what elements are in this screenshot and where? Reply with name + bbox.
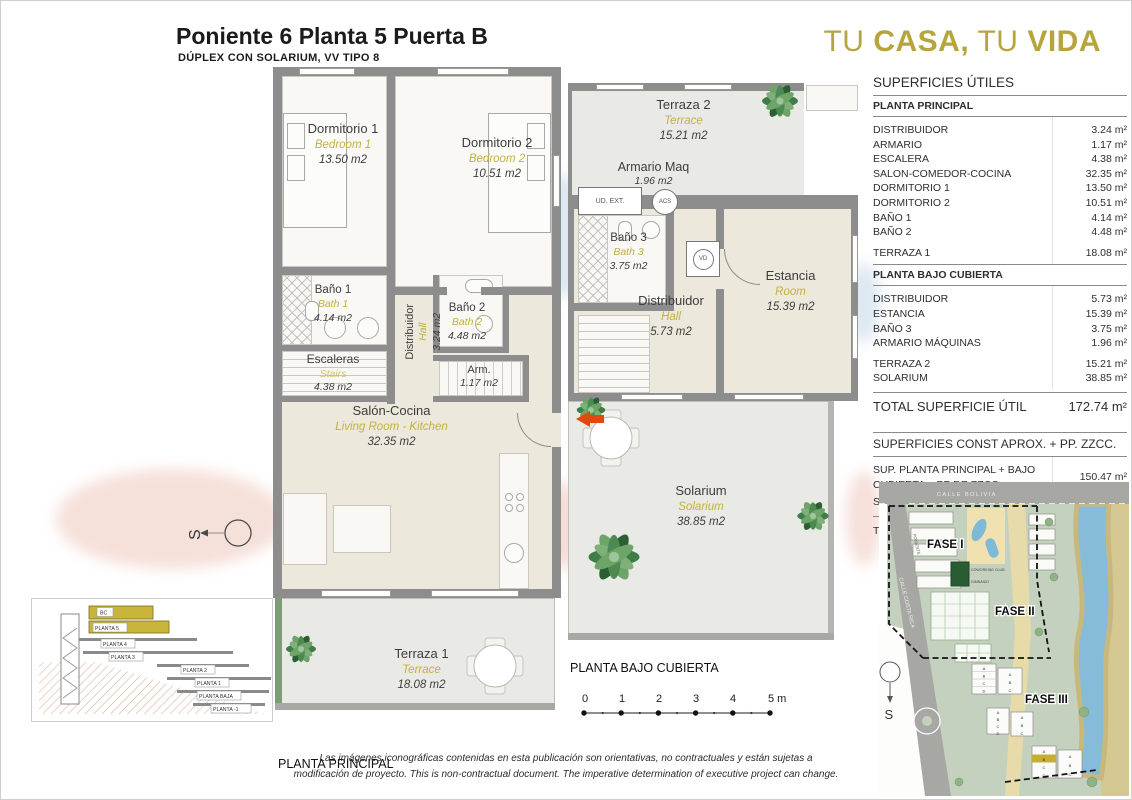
room-label-armario: Arm. 1.17 m2 [429,363,529,391]
room-name: Armario Maq [591,159,716,175]
table-title-superficies-const: SUPERFICIES CONST APROX. + PP. ZZCC. [873,432,1127,457]
row-value: 5.73 m² [1057,292,1127,307]
plant-icon [580,523,648,591]
row-value: 3.24 m² [1057,123,1127,138]
row-value: 38.85 m² [1057,371,1127,386]
vd-label: VD [699,256,707,262]
block-letter: A [1009,672,1012,677]
room-name-en: Bedroom 2 [437,152,557,167]
sofa [333,505,391,553]
room-label-escaleras: Escaleras Stairs 4.38 m2 [277,352,389,395]
row-label: ARMARIO MÁQUINAS [873,336,1057,351]
fase2-label: FASE II [995,606,1035,618]
room-name-en: Hall [616,310,726,325]
table-row: DORMITORIO 210.51 m² [873,196,1127,211]
table-row: TERRAZA 215.21 m² [873,357,1127,372]
row-label: SALON-COMEDOR-COCINA [873,167,1057,182]
table-row: ARMARIO1.17 m² [873,138,1127,153]
room-name: Dormitorio 2 [437,135,557,152]
block-letter: B [1021,723,1024,728]
site-map: CALLE BOLIVIA CALLE COSTA RICA PONIENTE … [879,482,1129,796]
block-letter: A [1043,749,1046,754]
total-value: 172.74 m² [1057,399,1127,414]
room-name: Dormitorio 1 [283,121,403,138]
table-row: BAÑO 33.75 m² [873,322,1127,337]
room-area: 10.51 m2 [437,167,557,182]
row-label: BAÑO 1 [873,211,1057,226]
brand-slogan: TU CASA, TU VIDA [823,25,1101,59]
plant-icon [756,77,804,125]
ud-ext-label: UD. EXT. [596,198,625,205]
row-value: 10.51 m² [1057,196,1127,211]
room-label-armario-maq: Armario Maq 1.96 m2 [591,159,716,189]
block-letter: C [997,724,1000,729]
floor-label-planta2: PLANTA 2 [183,668,207,674]
room-name: Terraza 1 [354,646,489,663]
legal-disclaimer: Las imágenes iconográficas contenidas en… [251,751,881,783]
hob-burner [516,493,524,501]
room-name-en: Terrace [621,114,746,129]
fase3-label: FASE III [1025,694,1068,706]
block-letter: B [983,674,986,679]
table-row: DORMITORIO 113.50 m² [873,181,1127,196]
disclaimer-line1: Las imágenes iconográficas contenidas en… [251,751,881,767]
table-row: TERRAZA 118.08 m² [873,246,1127,261]
room-name: Escaleras [277,352,389,368]
table-row: SOLARIUM38.85 m² [873,371,1127,386]
row-label: DORMITORIO 2 [873,196,1057,211]
floor-label-planta-baja: PLANTA BAJA [199,694,233,700]
coworking-building [951,562,969,586]
floorplan-planta-principal: Dormitorio 1 Bedroom 1 13.50 m2 Dormitor… [269,63,565,721]
room-name-en: Bath 3 [581,246,676,260]
table-rows-planta-bajo: DISTRIBUIDOR5.73 m² ESTANCIA15.39 m² BAÑ… [873,286,1127,390]
acs-label: ACS [659,199,671,205]
vd-unit-box: VD [686,241,720,277]
row-label: TERRAZA 1 [873,246,1057,261]
room-name: Baño 3 [581,231,676,246]
coworking-label: COWORKING CLUB [971,568,1005,572]
exterior-unit-box: UD. EXT. [578,187,642,215]
map-road-top [879,482,1129,504]
block-letter: B [1009,680,1012,685]
room-area: 3.75 m2 [581,260,676,274]
floor-label-planta4: PLANTA 4 [103,642,127,648]
table-row: DISTRIBUIDOR5.73 m² [873,292,1127,307]
floor-label-planta-menos1: PLANTA -1 [213,707,239,713]
block-letter: D [983,689,986,694]
row-value: 4.48 m² [1057,225,1127,240]
room-name-en: Room [738,285,843,300]
brochure-page: Poniente 6 Planta 5 Puerta B DÚPLEX CON … [0,0,1132,800]
table-row: ARMARIO MÁQUINAS1.96 m² [873,336,1127,351]
row-label: SOLARIUM [873,371,1057,386]
room-area: 4.14 m2 [277,312,389,326]
room-name: Terraza 2 [621,97,746,114]
caption-planta-bajo-cubierta: PLANTA BAJO CUBIERTA [570,661,719,675]
room-area: 1.96 m2 [591,175,716,189]
room-name-en: Solarium [641,500,761,515]
row-value: 32.35 m² [1057,167,1127,182]
building-section-diagram: BC PLANTA 5 PLANTA 4 PLANTA 3 PLANTA 2 P… [31,598,273,722]
room-name: Solarium [641,483,761,500]
block-letter: A [983,666,986,671]
room-name-en: Terrace [354,663,489,678]
block-letter: B [1043,757,1046,762]
table-row: BAÑO 24.48 m² [873,225,1127,240]
room-area: 13.50 m2 [283,153,403,168]
room-area: 15.21 m2 [621,129,746,144]
block-letter: C [1009,688,1012,693]
room-name-en: Living Room - Kitchen [324,420,459,435]
compass-letter: S [187,529,204,540]
block-letter: D [997,731,1000,736]
row-value: 1.17 m² [1057,138,1127,153]
floor-label-bc: BC [100,611,107,617]
room-area: 32.35 m2 [324,435,459,450]
kitchen-counter [499,453,529,589]
scale-bar: 0 1 2 3 4 5 m [578,687,788,725]
room-label-distribuidor-bajo: Distribuidor Hall 5.73 m2 [616,293,726,340]
room-name: Distribuidor [616,293,726,310]
room-label-salon: Salón-Cocina Living Room - Kitchen 32.35… [324,403,459,450]
table-title-superficies-utiles: SUPERFICIES ÚTILES [873,73,1127,96]
row-value: 13.50 m² [1057,181,1127,196]
room-label-terraza2: Terraza 2 Terrace 15.21 m2 [621,97,746,144]
scale-tick: 3 [693,693,699,705]
plant-icon [792,495,834,537]
row-value: 15.21 m² [1057,357,1127,372]
surface-tables: SUPERFICIES ÚTILES PLANTA PRINCIPAL DIST… [873,73,1127,545]
room-name-en: Stairs [277,368,389,382]
table-subheading-planta-principal: PLANTA PRINCIPAL [873,96,1127,117]
room-name: Baño 1 [277,283,389,298]
row-value: 18.08 m² [1057,246,1127,261]
room-label-terraza1: Terraza 1 Terrace 18.08 m2 [354,646,489,693]
room-label-bano1: Baño 1 Bath 1 4.14 m2 [277,283,389,325]
room-area: 15.39 m2 [738,300,843,315]
row-label: ARMARIO [873,138,1057,153]
table-subheading-planta-bajo-cubierta: PLANTA BAJO CUBIERTA [873,264,1127,286]
floor-label-planta3: PLANTA 3 [111,655,135,661]
room-label-dormitorio1: Dormitorio 1 Bedroom 1 13.50 m2 [283,121,403,168]
row-label: DISTRIBUIDOR [873,123,1057,138]
block-letter: B [1069,763,1072,768]
table-row: BAÑO 14.14 m² [873,211,1127,226]
brand-word: VIDA [1027,25,1101,58]
row-value: 3.75 m² [1057,322,1127,337]
room-name: Salón-Cocina [324,403,459,420]
kitchen-sink [504,543,524,563]
total-superficie-util-row: TOTAL SUPERFICIE ÚTIL 172.74 m² [873,392,1127,420]
stair-bulkhead [806,85,858,111]
row-label: BAÑO 3 [873,322,1057,337]
room-label-solarium: Solarium Solarium 38.85 m2 [641,483,761,530]
brand-word: TU [823,25,864,58]
room-label-estancia: Estancia Room 15.39 m2 [738,268,843,315]
room-area: 38.85 m2 [641,515,761,530]
room-name: Estancia [738,268,843,285]
floor-label-planta1: PLANTA 1 [197,681,221,687]
table-row: ESTANCIA15.39 m² [873,307,1127,322]
north-compass: S [186,506,261,558]
table-rows-planta-principal: DISTRIBUIDOR3.24 m² ARMARIO1.17 m² ESCAL… [873,117,1127,264]
block-letter: A [1069,754,1072,759]
map-river [1076,504,1111,778]
row-label: DISTRIBUIDOR [873,292,1057,307]
hob-burner [516,504,524,512]
block-letter: C [983,681,986,686]
block-letter: A [1021,715,1024,720]
vd-icon: VD [693,249,714,270]
scale-tick: 5 m [768,693,786,705]
brand-word: TU [977,25,1018,58]
scale-tick: 1 [619,693,625,705]
scale-tick: 0 [582,693,588,705]
row-value: 4.14 m² [1057,211,1127,226]
row-value: 15.39 m² [1057,307,1127,322]
scale-tick: 2 [656,693,662,705]
room-name: Arm. [429,363,529,377]
compass-letter: S [885,707,894,722]
row-label: ESTANCIA [873,307,1057,322]
row-label: BAÑO 2 [873,225,1057,240]
room-area: 18.08 m2 [354,678,489,693]
floor-label-planta5: PLANTA 5 [95,626,119,632]
table-row: ESCALERA4.38 m² [873,152,1127,167]
block-letter: A [997,710,1000,715]
block-letter: C [1043,765,1046,770]
room-label-bano3: Baño 3 Bath 3 3.75 m2 [581,231,676,273]
page-subtitle: DÚPLEX CON SOLARIUM, VV TIPO 8 [178,52,380,64]
floorplan-planta-bajo-cubierta: UD. EXT. ACS VD [566,83,861,661]
row-label: ESCALERA [873,152,1057,167]
row-label: DORMITORIO 1 [873,181,1057,196]
gimnasio-label: GIMNASIO [971,580,989,584]
street-label-calle-bolivia: CALLE BOLIVIA [937,492,997,498]
room-area: 5.73 m2 [616,325,726,340]
fase1-label: FASE I [927,539,963,551]
total-label: TOTAL SUPERFICIE ÚTIL [873,399,1057,414]
row-label: TERRAZA 2 [873,357,1057,372]
room-name-en: Bedroom 1 [283,138,403,153]
hob-burner [505,504,513,512]
table-row: SALON-COMEDOR-COCINA32.35 m² [873,167,1127,182]
plant-icon [281,629,321,669]
block-letter: C [1021,731,1024,736]
hob-burner [505,493,513,501]
row-value: 1.96 m² [1057,336,1127,351]
sofa [283,493,327,565]
brand-word: CASA, [873,25,969,58]
room-name-en: Bath 1 [277,298,389,312]
block-letter: B [997,717,1000,722]
room-name: Distribuidor [403,277,417,387]
row-value: 4.38 m² [1057,152,1127,167]
page-title: Poniente 6 Planta 5 Puerta B [176,23,488,50]
disclaimer-line2: modificación de proyecto. This is non-co… [251,767,881,783]
acs-unit-icon: ACS [652,189,678,215]
room-area: 4.38 m2 [277,381,389,395]
table-row: DISTRIBUIDOR3.24 m² [873,123,1127,138]
scale-tick: 4 [730,693,736,705]
room-label-dormitorio2: Dormitorio 2 Bedroom 2 10.51 m2 [437,135,557,182]
room-area: 1.17 m2 [429,377,529,391]
